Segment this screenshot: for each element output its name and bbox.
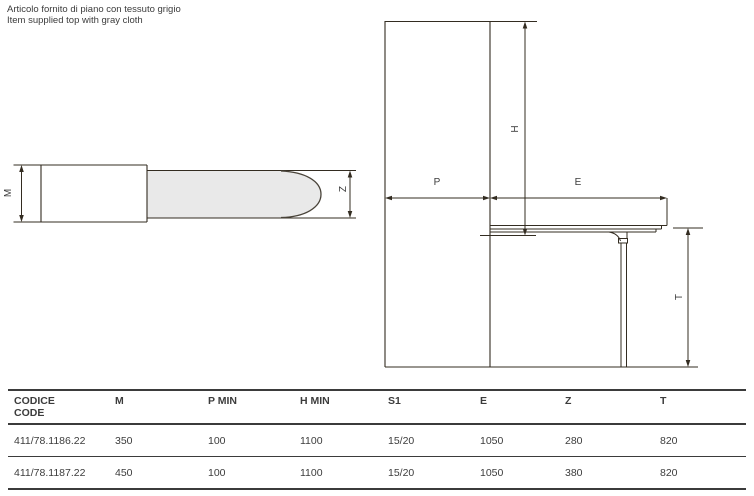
header-cell-z: Z [565, 391, 660, 423]
cell-e: 1050 [480, 425, 565, 456]
header-cell-p-min: P MIN [208, 391, 300, 423]
header-cell-h-min: H MIN [300, 391, 388, 423]
leg [621, 243, 627, 367]
note-line-english: Item supplied top with gray cloth [7, 15, 181, 27]
dim-label-e: E [571, 176, 585, 190]
cell-m: 450 [115, 457, 208, 488]
cell-e: 1050 [480, 457, 565, 488]
cell-code: 411/78.1186.22 [14, 425, 115, 456]
cell-z: 280 [565, 425, 660, 456]
table-row: 411/78.1186.22 350 100 1100 15/20 1050 2… [8, 425, 746, 457]
note-line-italian: Articolo fornito di piano con tessuto gr… [7, 4, 181, 16]
cell-m: 350 [115, 425, 208, 456]
dim-label-p: P [430, 176, 444, 190]
cell-t: 820 [660, 425, 746, 456]
header-cell-e: E [480, 391, 565, 423]
header-cell-codice: CODICE CODE [14, 391, 115, 423]
dim-label-t: T [673, 290, 687, 304]
table-header-row: CODICE CODE M P MIN H MIN S1 E Z T [8, 391, 746, 425]
cell-code: 411/78.1187.22 [14, 457, 115, 488]
side-view-drawing [378, 8, 726, 380]
cell-p-min: 100 [208, 457, 300, 488]
plan-view-drawing [0, 148, 370, 238]
tabletop [490, 226, 667, 233]
spec-table: CODICE CODE M P MIN H MIN S1 E Z T 411/7… [8, 389, 746, 490]
note-block: NOTE Articolo fornito di piano con tessu… [7, 0, 181, 27]
cell-s1: 15/20 [388, 425, 480, 456]
panel-outline [385, 22, 490, 368]
cell-s1: 15/20 [388, 457, 480, 488]
plan-body-outline [14, 165, 148, 222]
catalog-spec-page: NOTE Articolo fornito di piano con tessu… [0, 0, 754, 496]
dim-label-m: M [2, 186, 16, 200]
cell-h-min: 1100 [300, 457, 388, 488]
cell-t: 820 [660, 457, 746, 488]
top-cloth-surface [147, 171, 321, 218]
header-cell-s1: S1 [388, 391, 480, 423]
header-cell-t: T [660, 391, 746, 423]
dim-label-z: Z [337, 182, 351, 196]
support-bracket [609, 232, 628, 243]
cell-z: 380 [565, 457, 660, 488]
cell-h-min: 1100 [300, 425, 388, 456]
dim-label-h: H [509, 122, 523, 136]
cell-p-min: 100 [208, 425, 300, 456]
table-row: 411/78.1187.22 450 100 1100 15/20 1050 3… [8, 457, 746, 490]
header-cell-m: M [115, 391, 208, 423]
